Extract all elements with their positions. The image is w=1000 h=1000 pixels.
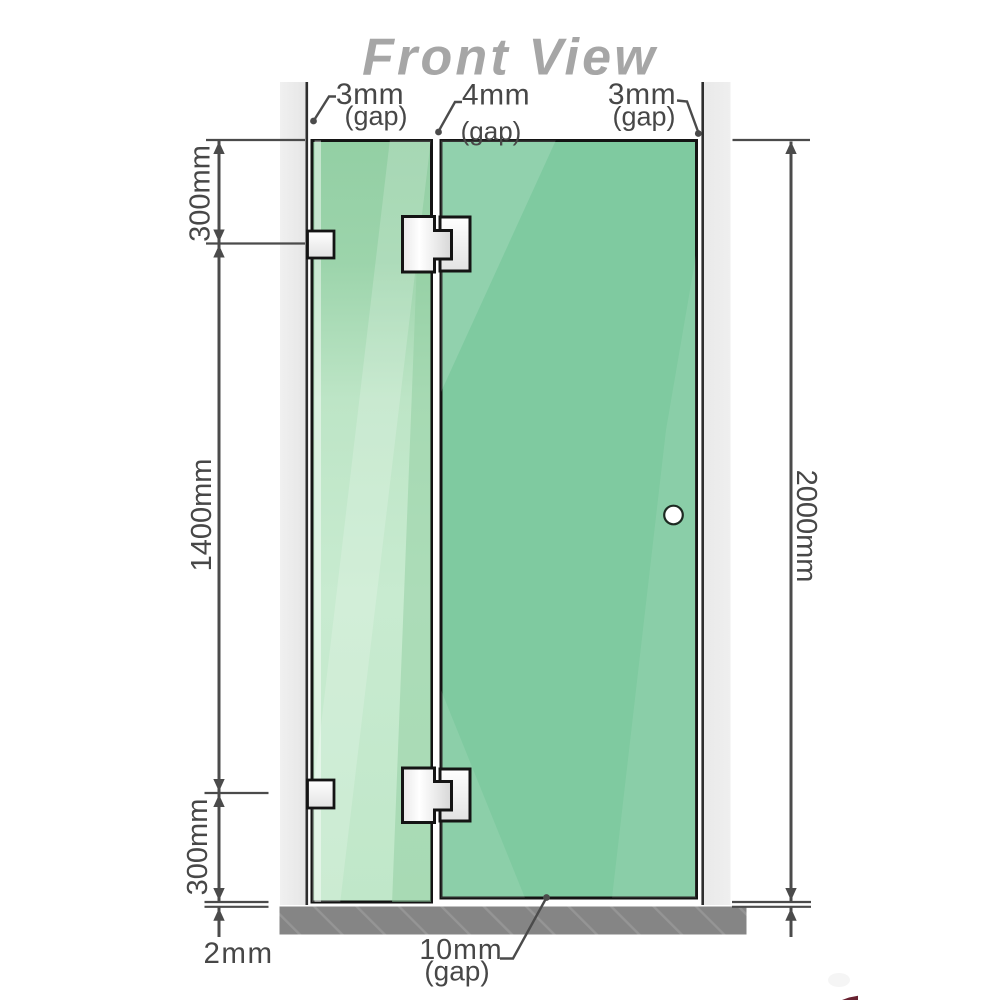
- svg-text:(gap): (gap): [424, 956, 489, 987]
- svg-text:1400mm: 1400mm: [186, 459, 218, 572]
- svg-text:300mm: 300mm: [185, 145, 217, 242]
- svg-text:2000mm: 2000mm: [790, 470, 822, 583]
- svg-text:4mm: 4mm: [462, 79, 530, 112]
- svg-text:(gap): (gap): [461, 116, 522, 146]
- svg-text:300mm: 300mm: [182, 799, 214, 896]
- svg-text:(gap): (gap): [612, 102, 675, 132]
- svg-text:2mm: 2mm: [203, 937, 273, 970]
- svg-text:(gap): (gap): [344, 101, 407, 131]
